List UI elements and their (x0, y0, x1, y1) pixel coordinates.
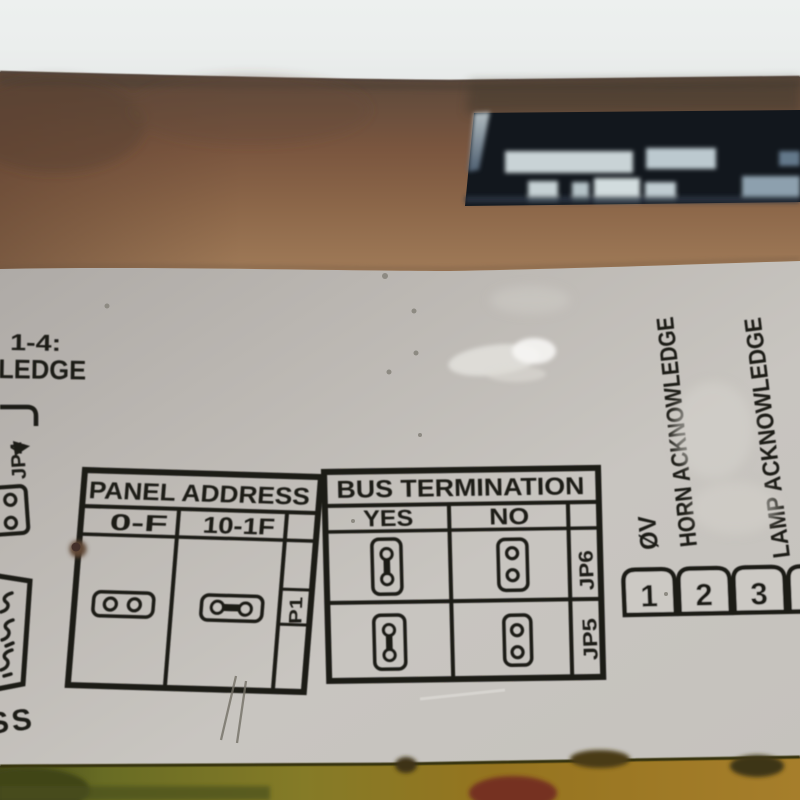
svg-text:WLEDGE: WLEDGE (0, 354, 86, 386)
svg-text:YES: YES (363, 505, 414, 532)
svg-text:1-4:: 1-4: (10, 329, 61, 356)
svg-text:2: 2 (695, 577, 714, 612)
svg-text:SS: SS (0, 703, 37, 741)
svg-text:P1: P1 (285, 597, 306, 624)
svg-text:3: 3 (750, 576, 769, 611)
svg-text:10-1F: 10-1F (202, 512, 276, 540)
svg-text:JP5: JP5 (579, 618, 603, 661)
svg-text:JP6: JP6 (575, 550, 599, 591)
svg-text:BUS TERMINATION: BUS TERMINATION (336, 473, 585, 504)
svg-text:NO: NO (489, 503, 530, 530)
svg-text:ØV: ØV (633, 514, 664, 551)
svg-text:0-F: 0-F (109, 509, 169, 537)
svg-text:1: 1 (640, 578, 659, 613)
